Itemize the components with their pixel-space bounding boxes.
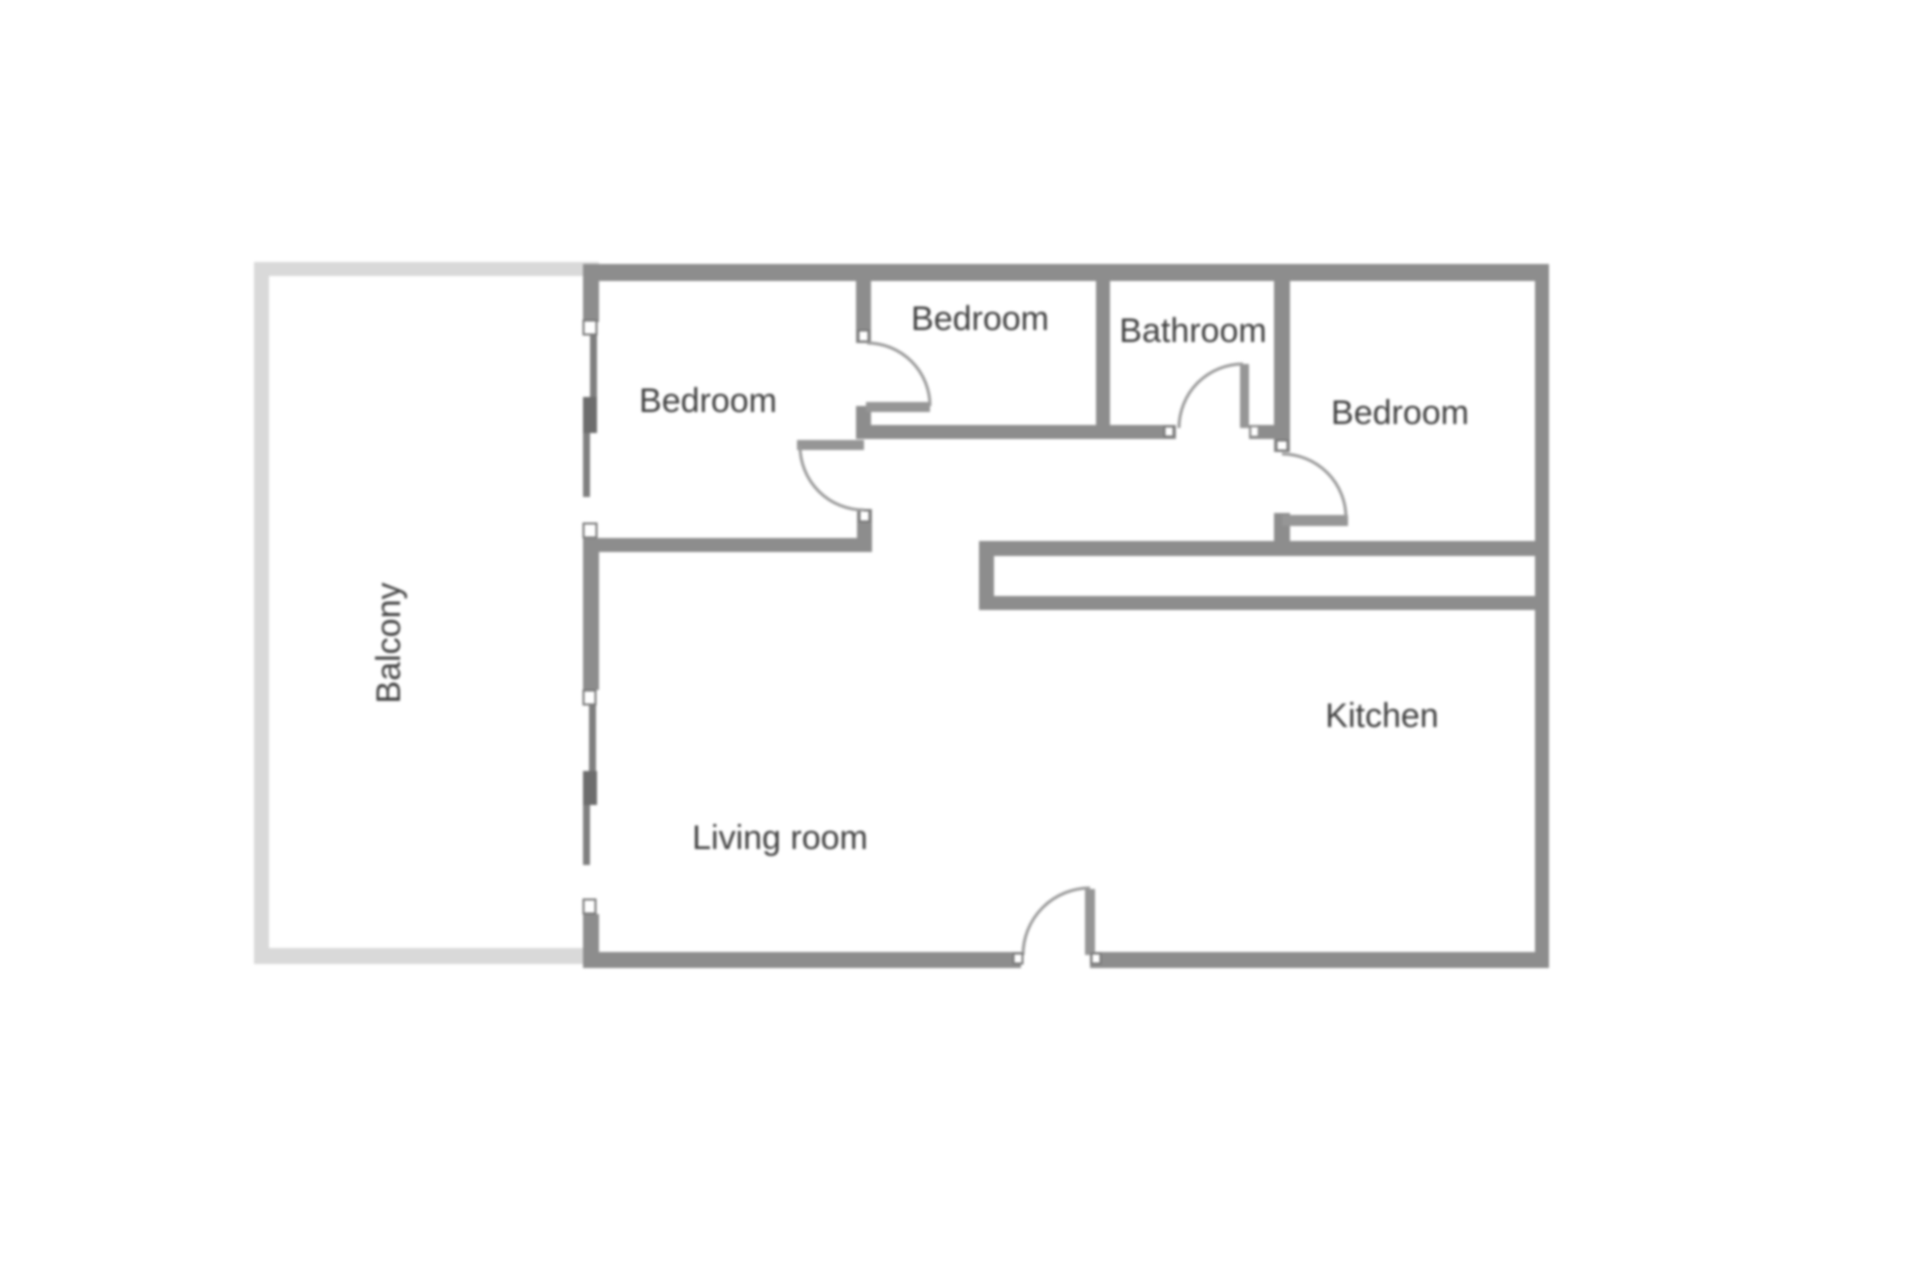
svg-text:Bedroom: Bedroom xyxy=(639,382,777,420)
svg-text:Bedroom: Bedroom xyxy=(911,300,1049,338)
svg-text:Balcony: Balcony xyxy=(370,583,408,704)
svg-text:Kitchen: Kitchen xyxy=(1325,697,1438,735)
svg-text:Bedroom: Bedroom xyxy=(1331,394,1469,432)
svg-text:Bathroom: Bathroom xyxy=(1119,312,1266,350)
svg-text:Living room: Living room xyxy=(692,819,868,857)
